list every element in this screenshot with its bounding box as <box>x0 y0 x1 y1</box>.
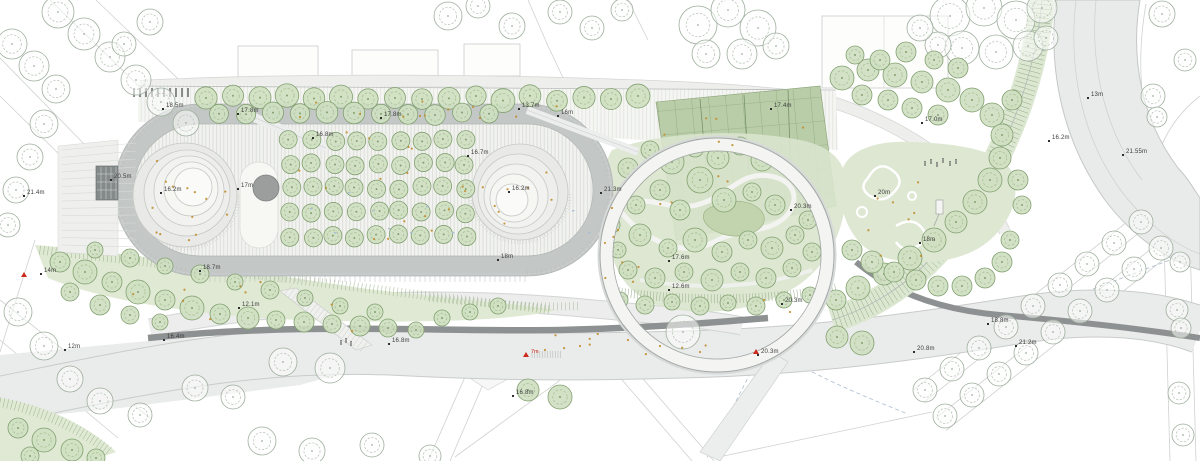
park-tree <box>90 295 110 315</box>
park-tree <box>980 103 1004 127</box>
park-tree <box>826 326 848 348</box>
park-tree <box>783 259 801 277</box>
park-tree <box>629 224 651 246</box>
park-tree <box>683 228 707 252</box>
street-tree <box>30 332 58 360</box>
park-tree <box>367 226 385 244</box>
park-tree <box>413 132 431 150</box>
park-tree <box>645 268 665 288</box>
park-tree <box>462 304 478 320</box>
park-tree <box>392 156 410 174</box>
park-tree <box>297 290 313 306</box>
park-tree <box>323 315 341 333</box>
park-tree <box>346 157 364 175</box>
park-tree <box>412 203 430 221</box>
street-tree <box>360 433 384 457</box>
street-tree <box>1171 318 1191 338</box>
park-tree <box>989 147 1011 169</box>
park-tree <box>267 311 285 329</box>
park-tree <box>846 46 864 64</box>
park-tree <box>191 265 209 283</box>
park-tree <box>846 276 870 300</box>
park-tree <box>121 306 139 324</box>
park-tree <box>121 249 139 267</box>
park-tree <box>659 239 677 257</box>
park-tree <box>294 312 314 332</box>
street-tree <box>0 29 27 59</box>
street-tree <box>913 378 937 402</box>
street-tree <box>1147 107 1167 127</box>
park-tree <box>325 177 343 195</box>
street-tree <box>1172 424 1194 446</box>
street-tree <box>3 177 29 203</box>
park-tree <box>279 131 297 149</box>
park-tree <box>739 231 757 249</box>
entry-structure <box>96 166 118 200</box>
park-tree <box>765 195 785 215</box>
street-tree <box>930 0 970 36</box>
street-tree <box>87 388 113 414</box>
street-tree <box>692 40 720 68</box>
park-tree <box>367 304 383 320</box>
building-outline <box>464 44 520 76</box>
park-tree <box>992 252 1012 272</box>
park-tree <box>963 190 987 214</box>
park-tree <box>411 226 429 244</box>
park-tree <box>720 295 736 311</box>
park-tree <box>911 71 933 93</box>
street-tree <box>221 385 245 409</box>
street-tree <box>419 445 441 461</box>
park-tree <box>928 105 948 125</box>
park-tree <box>480 105 498 123</box>
park-tree <box>743 183 761 201</box>
park-tree <box>21 447 39 461</box>
park-tree <box>283 178 301 196</box>
park-tree <box>687 167 713 193</box>
street-tree <box>548 0 572 24</box>
park-tree <box>548 385 572 409</box>
park-tree <box>842 240 862 260</box>
park-tree <box>675 263 693 281</box>
park-tree <box>61 439 83 461</box>
park-tree <box>379 319 397 337</box>
street-tree <box>611 0 633 21</box>
street-tree <box>1166 299 1188 321</box>
street-tree <box>1149 236 1173 260</box>
park-tree <box>398 105 418 125</box>
park-tree <box>304 229 322 247</box>
park-tree <box>978 168 1002 192</box>
park-tree <box>830 66 854 90</box>
park-tree <box>928 276 948 296</box>
street-tree <box>466 0 490 18</box>
park-tree <box>731 263 749 281</box>
street-tree <box>1021 294 1045 318</box>
park-tree <box>547 90 568 111</box>
park-tree <box>390 180 408 198</box>
park-tree <box>975 268 995 288</box>
park-tree <box>126 280 150 304</box>
park-tree <box>922 228 946 252</box>
park-tree <box>152 314 168 330</box>
street-tree <box>42 75 70 103</box>
park-tree <box>960 88 984 112</box>
street-tree <box>182 375 208 401</box>
street-tree <box>121 65 151 95</box>
park-tree <box>414 154 432 172</box>
park-tree <box>896 42 916 62</box>
street-tree <box>1170 252 1190 272</box>
park-tree <box>1008 170 1028 190</box>
street-tree <box>1068 299 1092 323</box>
park-tree <box>369 132 387 150</box>
street-tree <box>940 357 964 381</box>
park-tree <box>316 101 338 123</box>
park-tree <box>327 132 345 150</box>
park-tree <box>73 260 97 284</box>
park-tree <box>952 276 972 296</box>
park-tree <box>180 296 204 320</box>
park-tree <box>701 269 723 291</box>
park-tree <box>345 178 363 196</box>
park-tree <box>102 272 122 292</box>
street-tree <box>1141 84 1165 108</box>
street-tree <box>1149 1 1175 27</box>
park-tree <box>304 178 322 196</box>
street-tree <box>580 16 604 40</box>
street-tree <box>173 110 199 136</box>
park-tree <box>157 258 173 274</box>
street-tree <box>1174 49 1196 71</box>
highway <box>1054 0 1200 270</box>
street-tree <box>315 353 345 383</box>
park-tree <box>850 331 874 355</box>
park-tree <box>1001 231 1019 249</box>
street-tree <box>19 51 49 81</box>
park-tree <box>236 105 255 124</box>
park-tree <box>155 290 175 310</box>
park-tree <box>519 85 541 107</box>
park-tree <box>1002 90 1022 110</box>
park-tree <box>8 418 28 438</box>
street-tree <box>137 9 163 35</box>
park-tree <box>884 262 904 282</box>
park-tree <box>761 237 783 259</box>
park-tree <box>906 270 926 290</box>
site-plan-canvas: 18.5m17.8m17.8m16.8m13.7m16m20.5m16.2m17… <box>0 0 1200 461</box>
park-tree <box>368 180 386 198</box>
park-tree <box>803 243 821 261</box>
park-tree <box>925 51 943 69</box>
street-tree <box>967 336 991 360</box>
park-tree <box>936 78 960 102</box>
park-tree <box>619 261 637 279</box>
street-tree <box>434 2 462 30</box>
street-tree <box>907 15 933 41</box>
park-tree <box>326 156 344 174</box>
park-tree <box>32 428 56 452</box>
site-plan-drawing <box>0 0 1200 461</box>
park-tree <box>453 103 472 122</box>
park-tree <box>61 283 79 301</box>
street-tree <box>1102 231 1126 255</box>
street-tree <box>1034 26 1058 50</box>
park-tree <box>303 131 321 149</box>
park-tree <box>369 155 387 173</box>
street-tree <box>128 403 152 427</box>
play-tower <box>936 200 943 214</box>
street-tree <box>68 18 100 50</box>
street-tree <box>979 35 1013 69</box>
street-tree <box>1168 382 1190 404</box>
park-tree <box>324 202 342 220</box>
park-tree <box>670 200 690 220</box>
street-tree <box>42 0 74 28</box>
park-tree <box>350 316 370 336</box>
park-tree <box>435 201 453 219</box>
park-tree <box>691 297 709 315</box>
park-tree <box>281 203 299 221</box>
park-tree <box>945 211 967 233</box>
park-tree <box>517 379 539 401</box>
pavilion-roof <box>253 175 279 201</box>
street-tree <box>499 13 525 39</box>
park-tree <box>457 180 475 198</box>
park-tree <box>664 294 680 310</box>
street-tree <box>1129 210 1153 234</box>
park-tree <box>756 268 776 288</box>
park-tree <box>626 84 650 108</box>
park-tree <box>490 298 506 314</box>
street-tree <box>994 315 1018 339</box>
park-tree <box>332 298 348 314</box>
park-tree <box>347 203 365 221</box>
street-tree <box>1014 341 1038 365</box>
park-tree <box>408 322 424 338</box>
street-tree <box>987 362 1011 386</box>
park-tree <box>210 304 230 324</box>
park-tree <box>434 177 452 195</box>
park-tree <box>237 307 259 329</box>
street-tree <box>57 366 83 392</box>
park-tree <box>776 292 792 308</box>
street-tree <box>248 427 276 455</box>
park-tree <box>466 86 486 106</box>
park-tree <box>261 281 279 299</box>
park-tree <box>870 50 890 70</box>
park-tree <box>991 124 1013 146</box>
park-tree <box>600 88 621 109</box>
park-tree <box>434 310 450 326</box>
park-tree <box>457 131 475 149</box>
park-tree <box>902 98 922 118</box>
park-tree <box>413 177 431 195</box>
pavilion-plaza <box>240 162 278 248</box>
park-tree <box>434 130 452 148</box>
street-tree <box>1048 273 1072 297</box>
park-tree <box>712 242 732 262</box>
street-tree <box>763 33 789 59</box>
street-tree <box>666 315 700 349</box>
park-tree <box>1013 196 1031 214</box>
park-tree <box>786 226 804 244</box>
park-tree <box>390 201 408 219</box>
park-tree <box>747 297 765 315</box>
street-tree <box>112 32 136 56</box>
park-tree <box>458 228 476 246</box>
park-tree <box>712 188 736 212</box>
street-tree <box>727 39 757 69</box>
park-tree <box>262 102 283 123</box>
park-tree <box>372 104 391 123</box>
park-tree <box>302 204 320 222</box>
street-tree <box>0 213 20 237</box>
park-tree <box>389 225 407 243</box>
park-tree <box>302 154 320 172</box>
street-tree <box>1122 257 1146 281</box>
park-tree <box>50 252 70 272</box>
street-tree <box>966 0 1002 26</box>
park-tree <box>573 86 595 108</box>
street-tree <box>147 88 175 116</box>
street-tree <box>1075 252 1099 276</box>
park-tree <box>650 180 670 200</box>
park-tree <box>290 104 309 123</box>
street-tree <box>1095 278 1119 302</box>
street-tree <box>1041 320 1065 344</box>
park-tree <box>861 251 883 273</box>
park-tree <box>455 156 473 174</box>
park-tree <box>385 88 406 109</box>
street-tree <box>17 144 43 170</box>
street-tree <box>30 110 58 138</box>
park-tree <box>210 104 229 123</box>
park-tree <box>878 90 898 110</box>
park-tree <box>948 58 968 78</box>
park-tree <box>223 85 244 106</box>
park-tree <box>348 132 366 150</box>
park-tree <box>281 228 299 246</box>
park-tree <box>343 102 365 124</box>
park-tree <box>636 296 654 314</box>
street-tree <box>933 404 957 428</box>
park-tree <box>436 154 454 172</box>
park-tree <box>282 156 300 174</box>
park-tree <box>456 205 474 223</box>
street-tree <box>4 298 32 326</box>
park-tree <box>324 227 342 245</box>
park-tree <box>227 274 243 290</box>
street-tree <box>299 438 325 461</box>
street-tree <box>960 383 984 407</box>
park-tree <box>425 105 446 126</box>
park-tree <box>852 85 872 105</box>
park-tree <box>392 132 410 150</box>
street-tree <box>269 348 297 376</box>
park-tree <box>345 229 363 247</box>
park-tree <box>87 242 103 258</box>
park-tree <box>435 225 453 243</box>
